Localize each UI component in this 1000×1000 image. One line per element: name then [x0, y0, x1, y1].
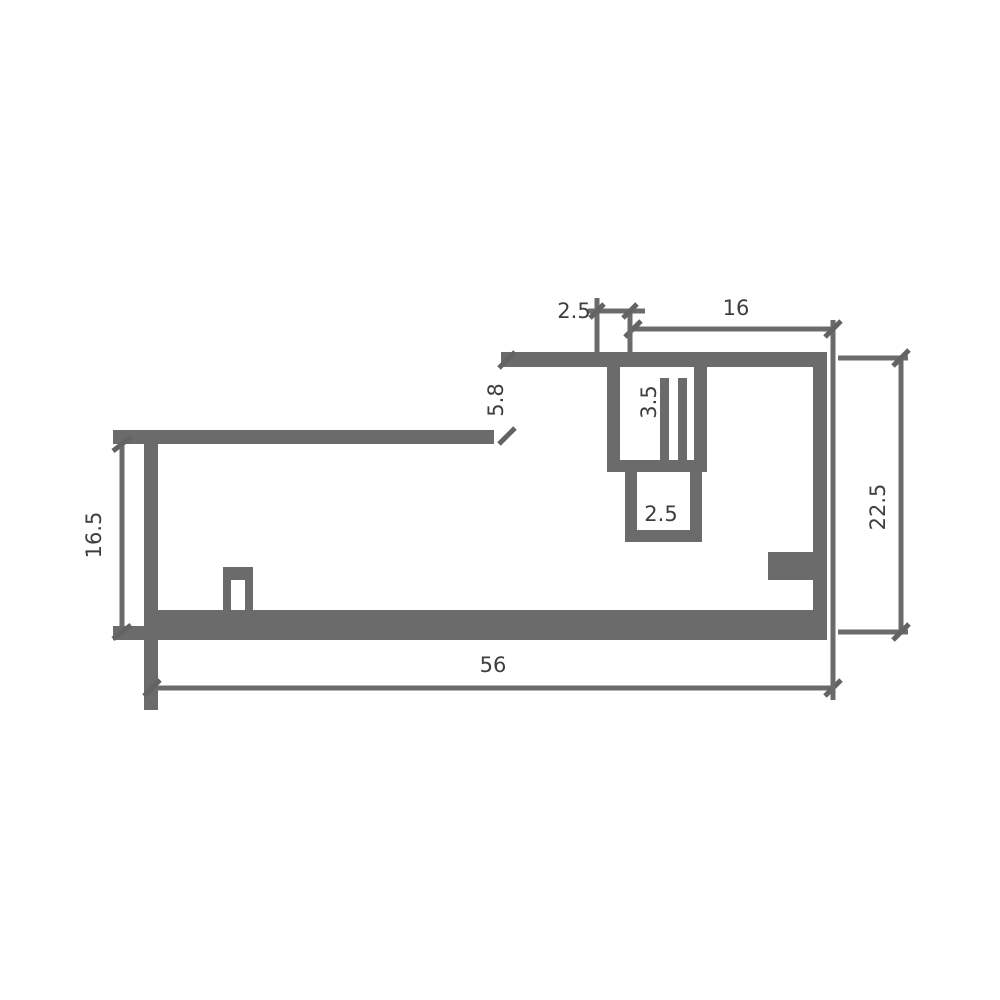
bottom-rib-hollow	[231, 580, 245, 610]
channel-right-wall	[694, 367, 707, 472]
label-channel-lower: 2.5	[644, 502, 677, 526]
channel-lower-cap	[625, 530, 702, 542]
channel-lower-right-wall	[690, 472, 702, 532]
label-left-height: 16.5	[82, 512, 106, 559]
right-wall-stub	[768, 552, 814, 580]
label-overall-width: 56	[480, 653, 507, 677]
bottom-dim-left-extension	[144, 640, 158, 710]
channel-left-wall	[607, 367, 620, 472]
label-channel-upper: 3.5	[637, 385, 661, 418]
channel-fin-left	[660, 378, 669, 462]
label-top-small: 2.5	[557, 299, 590, 323]
drawing-canvas: 2.5 16 5.8 3.5 2.5 16.5 22.5 56	[0, 0, 1000, 1000]
bottom-rib	[223, 567, 253, 610]
channel-lower-left-wall	[625, 472, 637, 532]
label-step-height: 5.8	[484, 383, 508, 416]
channel-fin-right	[678, 378, 687, 462]
label-top-width: 16	[723, 296, 750, 320]
profile-shape	[113, 352, 827, 710]
label-right-height: 22.5	[866, 484, 890, 531]
profile-drawing: 2.5 16 5.8 3.5 2.5 16.5 22.5 56	[0, 0, 1000, 1000]
channel-plate	[607, 460, 707, 472]
